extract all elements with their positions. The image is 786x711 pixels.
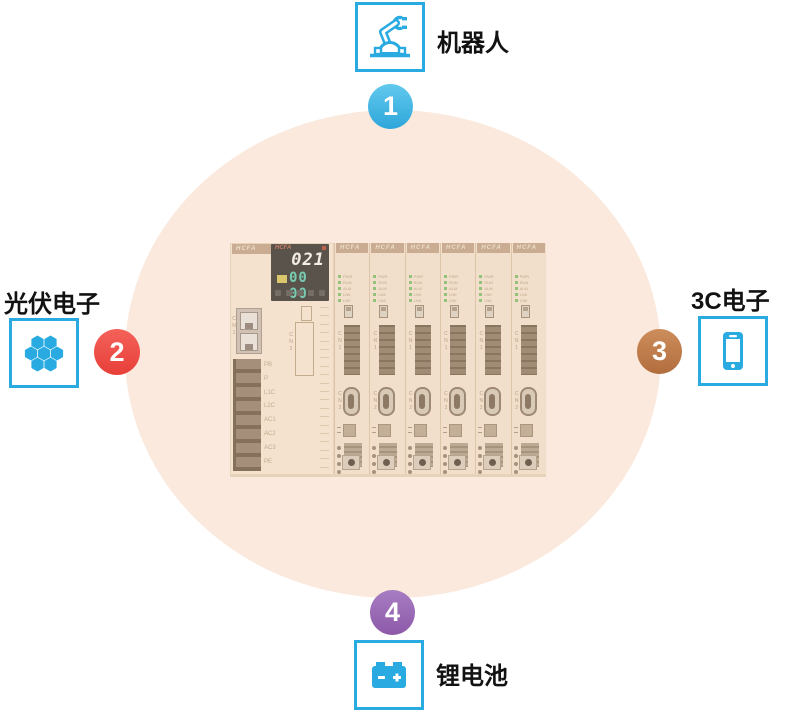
drive-module: HCFAPWRRUNALMLNKLNKCN1CN2 (511, 243, 546, 477)
terminal-tick (320, 458, 329, 459)
cn2-connector (449, 387, 466, 416)
led-row: RUN (338, 280, 365, 285)
led-label: LNK (484, 299, 492, 303)
screw-dot (443, 462, 447, 466)
module-connector-label: CN1 (408, 331, 413, 352)
led-row: RUN (479, 280, 506, 285)
adjust-knob (377, 455, 395, 470)
terminal-label: L1C (264, 390, 275, 396)
terminal-tick (320, 366, 329, 367)
display-chip (277, 275, 287, 283)
photovoltaic-number-badge: 2 (94, 329, 140, 375)
led-row: ALM (409, 286, 436, 291)
led-indicator (444, 281, 447, 284)
module-brand: HCFA (371, 243, 403, 253)
aux-mark (514, 427, 518, 428)
display-button (308, 290, 314, 296)
servo-drive-system: HCFA HCFA 021 00 00 CN1 (230, 243, 546, 477)
robot-number: 1 (383, 91, 398, 122)
led-row: PWR (444, 274, 471, 279)
terminal-tick (320, 391, 329, 392)
led-label: LNK (378, 293, 386, 297)
led-indicator (409, 293, 412, 296)
led-row: LNK (479, 292, 506, 297)
terminal-label: PE (264, 459, 272, 465)
module-connector-label: CN2 (372, 391, 377, 412)
aux-mark (372, 427, 376, 428)
led-indicator (444, 293, 447, 296)
led-indicator (479, 299, 482, 302)
robot-label: 机器人 (437, 23, 509, 58)
terminal-tick (320, 441, 329, 442)
plc-connector-top (301, 306, 312, 321)
module-brand: HCFA (477, 243, 509, 253)
led-row: RUN (409, 280, 436, 285)
cn1-connector (521, 325, 537, 375)
led-row: ALM (515, 286, 542, 291)
led-label: ALM (449, 287, 457, 291)
robot-icon-box (355, 2, 425, 72)
robot-number-badge: 1 (368, 84, 413, 129)
drive-module: HCFAPWRRUNALMLNKLNKCN1CN2 (475, 243, 510, 477)
aux-mark (478, 427, 482, 428)
led-indicator (515, 299, 518, 302)
usb-port (344, 305, 353, 318)
led-row: PWR (479, 274, 506, 279)
cn1-connector (344, 325, 360, 375)
plc-display: HCFA 021 00 00 (271, 244, 329, 301)
module-brand: HCFA (336, 243, 368, 253)
led-indicator (373, 299, 376, 302)
usb-port (521, 305, 530, 318)
led-label: LNK (343, 299, 351, 303)
electronics-3c-icon-box (698, 316, 768, 386)
terminal-tick (320, 425, 329, 426)
terminal-label: AC3 (264, 445, 276, 451)
led-indicator (409, 275, 412, 278)
usb-port (379, 305, 388, 318)
led-label: RUN (378, 281, 387, 285)
aux-mark (337, 432, 341, 433)
display-button (286, 290, 292, 296)
module-brand: HCFA (442, 243, 474, 253)
led-row: PWR (373, 274, 400, 279)
terminal-tick (320, 383, 329, 384)
cn2-connector (343, 387, 360, 416)
led-indicator (479, 281, 482, 284)
infographic: HCFA HCFA 021 00 00 CN1 (0, 0, 786, 711)
led-label: ALM (343, 287, 351, 291)
led-indicator (409, 287, 412, 290)
led-label: PWR (449, 275, 458, 279)
led-row: LNK (409, 298, 436, 303)
module-connector-label: CN1 (337, 331, 342, 352)
screw-dot (514, 454, 518, 458)
led-row: PWR (515, 274, 542, 279)
terminal-strip (233, 359, 261, 471)
usb-port (485, 305, 494, 318)
ethernet-ports (236, 308, 262, 354)
cn2-connector (414, 387, 431, 416)
terminal-tick (320, 341, 329, 342)
display-value-bottom: 00 00 (289, 270, 329, 302)
led-indicator (479, 287, 482, 290)
cn1-connector (450, 325, 466, 375)
led-row: LNK (444, 298, 471, 303)
led-row: PWR (409, 274, 436, 279)
led-label: PWR (343, 275, 352, 279)
module-connector-label: CN2 (443, 391, 448, 412)
display-button (297, 290, 303, 296)
led-row: LNK (338, 292, 365, 297)
aux-mark (408, 432, 412, 433)
robot-arm-icon (366, 13, 414, 61)
led-indicator (338, 281, 341, 284)
module-connector-label: CN2 (478, 391, 483, 412)
terminal-label: P (264, 376, 268, 382)
adjust-knob (342, 455, 360, 470)
module-brand: HCFA (407, 243, 439, 253)
lithium-battery-number: 4 (385, 597, 400, 628)
led-label: RUN (414, 281, 423, 285)
led-label: LNK (449, 299, 457, 303)
led-row: PWR (338, 274, 365, 279)
led-label: LNK (520, 293, 528, 297)
screw-dot (443, 446, 447, 450)
led-indicator (515, 275, 518, 278)
led-label: LNK (343, 293, 351, 297)
led-indicator (338, 287, 341, 290)
battery-icon (365, 651, 413, 699)
led-label: LNK (449, 293, 457, 297)
terminal-tick (320, 416, 329, 417)
terminal-tick (320, 450, 329, 451)
led-row: LNK (409, 292, 436, 297)
led-indicator (373, 293, 376, 296)
screw-dot (408, 446, 412, 450)
aux-mark (478, 432, 482, 433)
terminal-tick (320, 408, 329, 409)
display-button (275, 290, 281, 296)
drive-module: HCFAPWRRUNALMLNKLNKCN1CN2 (405, 243, 440, 477)
photovoltaic-label: 光伏电子 (4, 284, 100, 319)
led-row: LNK (338, 298, 365, 303)
screw-dot (372, 462, 376, 466)
cn1-connector (485, 325, 501, 375)
electronics-3c-label: 3C电子 (691, 281, 770, 316)
terminal-tick (320, 399, 329, 400)
terminal-tick (320, 324, 329, 325)
drive-module: HCFAPWRRUNALMLNKLNKCN1CN2 (369, 243, 404, 477)
led-row: RUN (444, 280, 471, 285)
led-label: ALM (520, 287, 528, 291)
led-label: LNK (484, 293, 492, 297)
led-label: RUN (449, 281, 458, 285)
ethernet-port (240, 333, 258, 351)
led-indicator (373, 275, 376, 278)
screw-dot (372, 454, 376, 458)
terminal-tick (320, 349, 329, 350)
aux-mark (337, 427, 341, 428)
led-row: ALM (444, 286, 471, 291)
led-label: ALM (378, 287, 386, 291)
led-label: RUN (484, 281, 493, 285)
led-indicator (338, 293, 341, 296)
terminal-tick (320, 332, 329, 333)
aux-connector (520, 424, 533, 437)
display-brand: HCFA (275, 245, 291, 251)
lithium-battery-label: 锂电池 (436, 656, 508, 691)
module-led-block: PWRRUNALMLNKLNK (444, 274, 471, 304)
module-led-block: PWRRUNALMLNKLNK (373, 274, 400, 304)
plc-unit: HCFA HCFA 021 00 00 CN1 (230, 243, 334, 477)
led-indicator (409, 299, 412, 302)
screw-dot (478, 454, 482, 458)
module-connector-label: CN1 (514, 331, 519, 352)
aux-connector (343, 424, 356, 437)
screw-dot (478, 446, 482, 450)
cn2-connector (484, 387, 501, 416)
screw-dot (337, 462, 341, 466)
adjust-knob (413, 455, 431, 470)
led-label: LNK (414, 293, 422, 297)
terminal-label: L2C (264, 403, 275, 409)
electronics-3c-number-badge: 3 (637, 329, 682, 374)
led-indicator (515, 287, 518, 290)
module-brand: HCFA (513, 243, 545, 253)
terminal-tick (320, 307, 329, 308)
led-label: ALM (484, 287, 492, 291)
module-led-block: PWRRUNALMLNKLNK (479, 274, 506, 304)
led-indicator (444, 275, 447, 278)
drive-module: HCFAPWRRUNALMLNKLNKCN1CN2 (440, 243, 475, 477)
module-connector-label: CN2 (514, 391, 519, 412)
solar-cell-icon (20, 329, 68, 377)
display-value-top: 021 (291, 250, 325, 270)
led-indicator (444, 299, 447, 302)
led-row: LNK (479, 298, 506, 303)
aux-mark (443, 432, 447, 433)
led-indicator (444, 287, 447, 290)
aux-mark (372, 432, 376, 433)
device-base-rail (230, 474, 546, 477)
photovoltaic-icon-box (9, 318, 79, 388)
led-label: RUN (520, 281, 529, 285)
screw-dot (514, 446, 518, 450)
smartphone-icon (709, 327, 757, 375)
led-indicator (479, 275, 482, 278)
led-row: LNK (515, 292, 542, 297)
terminal-tick (320, 467, 329, 468)
cn1-connector (415, 325, 431, 375)
aux-connector (484, 424, 497, 437)
photovoltaic-number: 2 (109, 337, 124, 368)
display-button (319, 290, 325, 296)
led-row: LNK (373, 298, 400, 303)
led-indicator (373, 287, 376, 290)
screw-dot (372, 446, 376, 450)
screw-dot (443, 454, 447, 458)
screw-dot (408, 454, 412, 458)
led-label: PWR (414, 275, 423, 279)
screw-dot (478, 462, 482, 466)
electronics-3c-number: 3 (652, 336, 667, 367)
drive-module: HCFAPWRRUNALMLNKLNKCN1CN2 (334, 243, 369, 477)
cn2-connector (520, 387, 537, 416)
led-label: PWR (378, 275, 387, 279)
terminal-tick (320, 315, 329, 316)
led-row: RUN (515, 280, 542, 285)
aux-mark (514, 432, 518, 433)
led-row: ALM (373, 286, 400, 291)
aux-mark (443, 427, 447, 428)
adjust-knob (483, 455, 501, 470)
led-label: RUN (343, 281, 352, 285)
module-connector-label: CN1 (372, 331, 377, 352)
led-row: ALM (479, 286, 506, 291)
terminal-label: AC1 (264, 417, 276, 423)
led-indicator (409, 281, 412, 284)
module-connector-label: CN2 (408, 391, 413, 412)
cn2-connector (378, 387, 395, 416)
plc-connector-outline (295, 322, 314, 376)
ethernet-port (240, 312, 258, 330)
terminal-label: AC2 (264, 431, 276, 437)
led-indicator (515, 293, 518, 296)
usb-port (415, 305, 424, 318)
terminal-label: PB (264, 362, 272, 368)
led-label: PWR (484, 275, 493, 279)
led-label: LNK (378, 299, 386, 303)
terminal-tick (320, 357, 329, 358)
led-row: ALM (338, 286, 365, 291)
led-indicator (338, 299, 341, 302)
terminal-tick (320, 374, 329, 375)
screw-dot (337, 446, 341, 450)
led-label: LNK (520, 299, 528, 303)
led-indicator (515, 281, 518, 284)
screw-dot (514, 462, 518, 466)
plc-connector-label: CN2 (288, 332, 293, 353)
module-led-block: PWRRUNALMLNKLNK (409, 274, 436, 304)
led-indicator (479, 293, 482, 296)
drive-modules: HCFAPWRRUNALMLNKLNKCN1CN2HCFAPWRRUNALMLN… (334, 243, 546, 477)
lithium-battery-icon-box (354, 640, 424, 710)
led-label: PWR (520, 275, 529, 279)
module-led-block: PWRRUNALMLNKLNK (515, 274, 542, 304)
module-led-block: PWRRUNALMLNKLNK (338, 274, 365, 304)
led-label: LNK (414, 299, 422, 303)
led-indicator (338, 275, 341, 278)
adjust-knob (448, 455, 466, 470)
usb-port (450, 305, 459, 318)
terminal-tick (320, 433, 329, 434)
aux-connector (414, 424, 427, 437)
led-row: LNK (515, 298, 542, 303)
module-connector-label: CN1 (478, 331, 483, 352)
aux-connector (378, 424, 391, 437)
led-label: ALM (414, 287, 422, 291)
led-row: RUN (373, 280, 400, 285)
display-buttons (275, 290, 327, 297)
lithium-battery-number-badge: 4 (370, 590, 415, 635)
screw-dot (408, 462, 412, 466)
adjust-knob (519, 455, 537, 470)
led-row: LNK (444, 292, 471, 297)
cn1-connector (379, 325, 395, 375)
led-indicator (373, 281, 376, 284)
module-connector-label: CN1 (443, 331, 448, 352)
led-row: LNK (373, 292, 400, 297)
aux-connector (449, 424, 462, 437)
aux-mark (408, 427, 412, 428)
module-connector-label: CN2 (337, 391, 342, 412)
screw-dot (337, 454, 341, 458)
